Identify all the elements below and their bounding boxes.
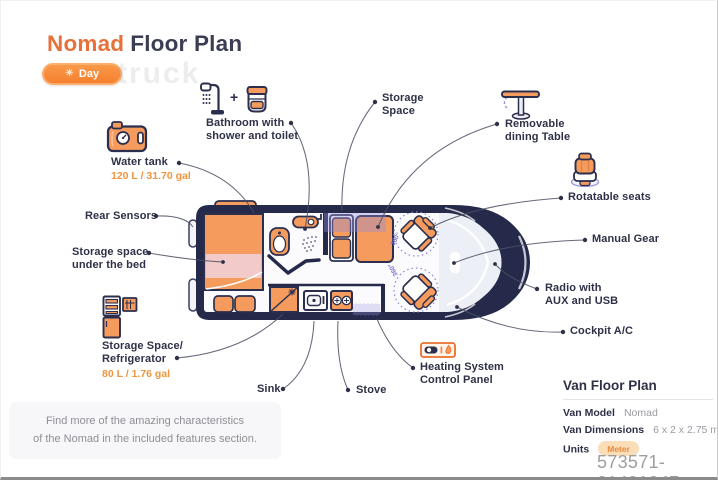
sink-basin (308, 296, 321, 306)
connector-storage-under-bed (149, 253, 223, 262)
swivel-circle-2 (394, 268, 438, 312)
sun-icon: ☀ (65, 69, 74, 79)
van-interior (204, 213, 446, 312)
manual-gear-label: Manual Gear (592, 233, 659, 246)
callout-rear-sensors: Rear Sensors (85, 210, 157, 223)
stove-label: Stove (356, 384, 386, 397)
van-body (196, 205, 530, 320)
bathroom-vanity (270, 228, 289, 255)
a-pillar-seam-top (445, 208, 475, 221)
callout-bathroom: Bathroom with shower and toilet (206, 117, 298, 144)
connector-stove (338, 321, 348, 390)
cab-area (439, 213, 502, 312)
page-title-accent: Nomad (47, 31, 124, 56)
bed-pillow-band (206, 254, 262, 278)
shower-spray-dots (302, 236, 317, 252)
features-note: Find more of the amazing characteristics… (9, 402, 281, 459)
cab-seat-2 (398, 271, 441, 314)
under-bed-cushion-1 (214, 296, 233, 312)
id-watermark: 573571-21491347 (597, 452, 717, 480)
van-dimensions-value: 6 x 2 x 2.75 m (653, 424, 718, 436)
cab-seat-1 (398, 211, 441, 254)
connector-fridge (177, 314, 283, 358)
rotatable-seats-label: Rotatable seats (568, 191, 651, 204)
info-panel-title: Van Floor Plan (563, 378, 657, 393)
day-mode-toggle[interactable]: ☀ Day (42, 63, 122, 85)
callout-manual-gear: Manual Gear (592, 233, 659, 246)
bathroom-label: Bathroom with shower and toilet (206, 117, 298, 144)
bumper-highlight (519, 236, 526, 289)
bed-headboard-tab (215, 201, 256, 212)
callout-rotatable-seats: Rotatable seats (568, 191, 651, 204)
page-title-rest: Floor Plan (130, 31, 242, 56)
connector-heating (377, 319, 413, 368)
fridge-value: 80 L / 1.76 gal (102, 368, 183, 380)
rear-sensor-tab-top (189, 220, 197, 247)
heating-system-overlay (353, 304, 380, 315)
callout-storage-space: Storage Space (382, 92, 424, 119)
stove-burner-1-cross (335, 298, 340, 303)
dinette-cushion-2 (333, 239, 351, 258)
under-bed-cushion-2 (235, 296, 255, 312)
fridge-fan-glyph (289, 289, 296, 296)
windshield-line (447, 220, 488, 305)
rotatable-seat-icon (569, 152, 601, 188)
callout-radio: Radio with AUX and USB (545, 282, 618, 309)
van-model-row: Van ModelNomad (563, 407, 658, 419)
swivel-circle-1 (394, 212, 438, 256)
heating-control-panel-icon (420, 342, 456, 358)
stove-burner-1 (333, 296, 341, 304)
fridge-diagonal (270, 287, 298, 312)
dining-table-top (356, 216, 393, 262)
stove-burner-2 (342, 296, 350, 304)
dining-table-icon (497, 87, 542, 121)
dash-console (450, 252, 460, 273)
heating-label: Heating System Control Panel (420, 361, 504, 388)
callout-heating: Heating System Control Panel (420, 361, 504, 388)
water-tank-value: 120 L / 31.70 gal (111, 170, 191, 182)
dinette-cushion-1 (333, 218, 351, 237)
units-label: Units (563, 444, 589, 456)
callout-connectors (149, 102, 585, 390)
bathroom-faucet-dot (278, 232, 281, 235)
toilet-icon (246, 84, 268, 114)
callout-sink: Sink (257, 383, 281, 396)
stove-burner-2-cross (344, 298, 349, 303)
van-floorplan: 360° 360° (189, 201, 530, 320)
callout-dining-table: Removable dining Table (505, 118, 570, 145)
kitchen-end-wall (381, 284, 385, 312)
rear-sensor-tab-bottom (189, 279, 197, 311)
shower-cassette (293, 217, 318, 228)
connector-manual-gear (454, 240, 585, 263)
shower-cassette-knob (308, 219, 314, 225)
info-panel-divider (563, 399, 713, 400)
connector-radio (495, 264, 537, 289)
callout-stove: Stove (356, 384, 386, 397)
bathroom-basin (274, 236, 286, 252)
cockpit-ac-label: Cockpit A/C (570, 325, 633, 338)
plus-icon: + (230, 90, 238, 104)
page-title: NomadFloor Plan (47, 31, 242, 57)
day-toggle-label: Day (79, 68, 99, 80)
shower-icon (199, 82, 225, 116)
storage-space-overlay (324, 213, 386, 232)
sink-unit (304, 291, 327, 310)
bed-fold-line (206, 272, 262, 289)
floorplan-page: truck NomadFloor Plan ☀ Day (0, 0, 718, 480)
sink-label: Sink (257, 383, 281, 396)
connector-rotatable-seats (430, 198, 561, 228)
fridge-label: Storage Space/ Refrigerator (102, 340, 183, 367)
rear-sensors-label: Rear Sensors (85, 210, 157, 223)
callout-water-tank: Water tank 120 L / 31.70 gal (111, 156, 191, 182)
connector-sink (283, 321, 314, 389)
stove-unit (331, 291, 352, 310)
van-model-label: Van Model (563, 407, 615, 419)
callout-fridge: Storage Space/ Refrigerator 80 L / 1.76 … (102, 340, 183, 380)
radio-label: Radio with AUX and USB (545, 282, 618, 309)
water-tank-icon (106, 120, 148, 153)
water-tank-label: Water tank (111, 156, 191, 169)
partition-wall (323, 213, 328, 255)
storage-space-label: Storage Space (382, 92, 424, 119)
storage-under-bed-label: Storage space under the bed (72, 246, 149, 273)
rotation-360-label-2: 360° (386, 262, 400, 278)
dining-table-label: Removable dining Table (505, 118, 570, 145)
dinette-bench (330, 215, 353, 261)
callout-storage-under-bed: Storage space under the bed (72, 246, 149, 273)
van-model-value: Nomad (624, 407, 658, 419)
fridge-top-view (270, 287, 298, 312)
callout-cockpit-ac: Cockpit A/C (570, 325, 633, 338)
van-dimensions-row: Van Dimensions6 x 2 x 2.75 m (563, 424, 718, 436)
background-watermark: truck (117, 57, 200, 91)
connector-cockpit-ac (457, 307, 563, 332)
connector-storage-space (342, 102, 375, 211)
van-dimensions-label: Van Dimensions (563, 424, 644, 436)
connector-dining-table (378, 124, 497, 227)
a-pillar-seam-bottom (445, 304, 475, 317)
refrigerator-icon (102, 295, 138, 339)
bathroom-door (269, 256, 319, 273)
rotation-360-label-1: 360° (389, 231, 403, 247)
sink-drain (312, 299, 315, 302)
bed (204, 214, 263, 290)
wall-faucet (317, 214, 321, 219)
connector-rear-sensors (156, 216, 193, 227)
